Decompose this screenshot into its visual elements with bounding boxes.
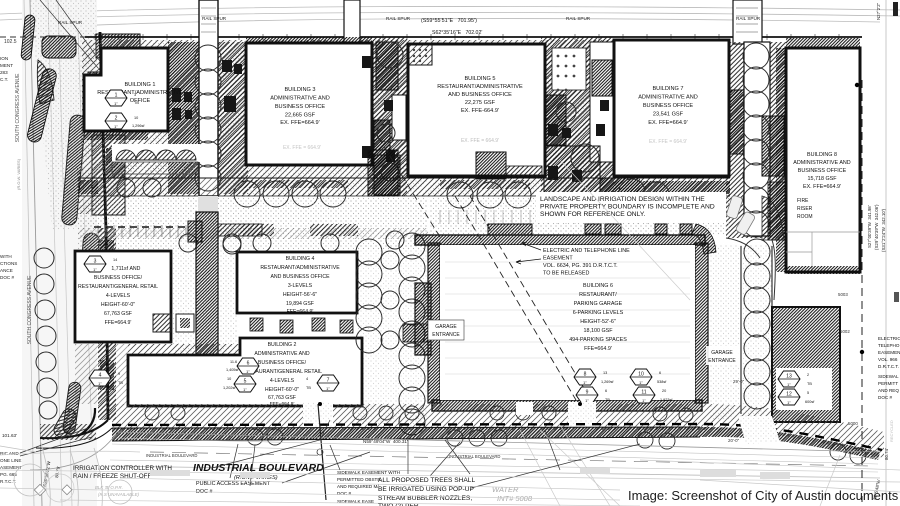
svg-text:RISER: RISER	[797, 206, 813, 212]
svg-text:1: 1	[115, 93, 118, 99]
svg-text:7: 7	[327, 378, 330, 384]
svg-text:BUILDING 7: BUILDING 7	[652, 86, 683, 92]
svg-text:WATER: WATER	[492, 485, 519, 494]
svg-text:(S29°40'39"W 342.06'): (S29°40'39"W 342.06')	[874, 204, 879, 250]
svg-text:FIRE: FIRE	[797, 198, 809, 204]
svg-text:ANCE: ANCE	[0, 268, 13, 273]
svg-text:TB: TB	[807, 382, 812, 386]
svg-text:LANDSCAPE AND IRRIGATION DESIG: LANDSCAPE AND IRRIGATION DESIGN WITHIN T…	[540, 196, 705, 203]
svg-text:BUSINESS OFFICE/: BUSINESS OFFICE/	[258, 360, 307, 366]
svg-text:GARAGE: GARAGE	[435, 324, 457, 330]
svg-text:8: 8	[584, 372, 587, 378]
svg-text:EX. FFE=664.9': EX. FFE=664.9'	[648, 120, 687, 126]
svg-text:ELECTRIC AND TELEPHONE LINE: ELECTRIC AND TELEPHONE LINE	[543, 248, 630, 254]
svg-text:5: 5	[244, 379, 247, 385]
svg-text:RAIL SPUR: RAIL SPUR	[58, 20, 83, 25]
svg-text:1": 1"	[243, 387, 247, 392]
svg-text:6: 6	[605, 389, 607, 393]
svg-text:PUBLIC ACCESS EASEMENT: PUBLIC ACCESS EASEMENT	[196, 481, 271, 487]
svg-text:ASEMENT: ASEMENT	[0, 465, 22, 470]
svg-text:13: 13	[786, 374, 792, 380]
svg-text:BUILDING 3: BUILDING 3	[284, 87, 315, 93]
svg-text:18,100 GSF: 18,100 GSF	[583, 328, 613, 334]
svg-text:TELEPHO: TELEPHO	[878, 343, 900, 348]
svg-text:RAIL SPUR: RAIL SPUR	[202, 16, 227, 21]
svg-text:RESTAURANT/ADMINISTRATIVE: RESTAURANT/ADMINISTRATIVE	[260, 265, 340, 271]
svg-text:HEIGHT-56'-6": HEIGHT-56'-6"	[283, 292, 317, 298]
svg-text:BUILDING 4: BUILDING 4	[286, 256, 315, 262]
svg-text:3-LEVELS: 3-LEVELS	[288, 283, 313, 289]
svg-text:SIDEWALK EASEMENT WITH: SIDEWALK EASEMENT WITH	[337, 470, 400, 475]
svg-text:AND REQ: AND REQ	[878, 388, 899, 393]
svg-text:CTIONS: CTIONS	[0, 261, 17, 266]
svg-text:ROOM: ROOM	[797, 214, 813, 220]
svg-text:11: 11	[641, 390, 646, 396]
svg-text:1,923sf: 1,923sf	[660, 398, 673, 402]
svg-text:BE IRRIGATED USING POP-UP: BE IRRIGATED USING POP-UP	[378, 486, 474, 493]
svg-text:1": 1"	[246, 369, 250, 374]
svg-text:3: 3	[94, 259, 97, 265]
svg-text:1,269sf: 1,269sf	[601, 380, 614, 384]
svg-text:4-LEVELS: 4-LEVELS	[106, 293, 131, 299]
svg-text:6: 6	[247, 361, 250, 367]
svg-text:C.T.: C.T.	[0, 77, 8, 82]
svg-text:FFE=664.9': FFE=664.9'	[105, 320, 132, 326]
svg-text:SIDEWAL: SIDEWAL	[878, 374, 899, 379]
svg-text:ADMINISTRATIVE AND: ADMINISTRATIVE AND	[270, 96, 330, 102]
svg-text:1,405sf: 1,405sf	[226, 368, 239, 372]
svg-text:1": 1"	[639, 380, 643, 385]
svg-text:5003: 5003	[838, 292, 848, 297]
svg-text:RIC AND: RIC AND	[0, 451, 19, 456]
svg-text:80.74': 80.74'	[884, 448, 889, 460]
svg-text:SOUTH CONGRESS AVENUE: SOUTH CONGRESS AVENUE	[27, 275, 33, 344]
svg-text:ENTRANCE: ENTRANCE	[432, 332, 460, 338]
svg-text:10: 10	[134, 116, 138, 120]
svg-text:10: 10	[638, 372, 644, 378]
svg-text:(R.S UNAVAILABLE): (R.S UNAVAILABLE)	[98, 492, 140, 497]
svg-text:D.R.T.C.T.: D.R.T.C.T.	[878, 364, 899, 369]
svg-text:ELECTRIC: ELECTRIC	[878, 336, 900, 341]
svg-text:GARAGE: GARAGE	[711, 350, 733, 356]
svg-text:EX. FFE = 664.9': EX. FFE = 664.9'	[283, 145, 321, 151]
svg-text:(R.O.W. VARIES): (R.O.W. VARIES)	[16, 158, 21, 190]
svg-text:BUSINESS OFFICE: BUSINESS OFFICE	[798, 168, 847, 174]
svg-text:1,296sf: 1,296sf	[132, 124, 145, 128]
svg-text:BUILDING 6: BUILDING 6	[583, 283, 613, 289]
svg-text:1": 1"	[93, 267, 97, 272]
svg-text:283: 283	[0, 70, 8, 75]
svg-text:BUSINESS OFFICE: BUSINESS OFFICE	[275, 104, 326, 110]
svg-text:ADMINISTRATIVE AND: ADMINISTRATIVE AND	[638, 95, 698, 101]
svg-text:20'-0": 20'-0"	[728, 438, 740, 443]
svg-text:1": 1"	[787, 400, 791, 405]
svg-text:HEIGHT-60'-0": HEIGHT-60'-0"	[265, 387, 299, 393]
svg-text:BUILDING 8: BUILDING 8	[807, 152, 837, 158]
svg-text:EX. FFE = 664.9': EX. FFE = 664.9'	[461, 138, 499, 144]
svg-text:15,718 GSF: 15,718 GSF	[807, 176, 837, 182]
svg-text:S27°00'39"W 341.98': S27°00'39"W 341.98'	[867, 205, 872, 248]
svg-text:BUILDING 1: BUILDING 1	[124, 82, 155, 88]
svg-text:RESTAURANT/GENERAL RETAIL: RESTAURANT/GENERAL RETAIL	[78, 284, 158, 290]
svg-text:20: 20	[662, 389, 666, 393]
svg-text:EASEMENT: EASEMENT	[543, 256, 573, 262]
svg-text:PERMITT: PERMITT	[878, 381, 898, 386]
svg-text:N27°2'2": N27°2'2"	[876, 2, 881, 20]
svg-text:EASEMEN: EASEMEN	[878, 350, 900, 355]
svg-text:SHOWN FOR REFERENCE ONLY.: SHOWN FOR REFERENCE ONLY.	[540, 211, 645, 218]
svg-text:1": 1"	[583, 380, 587, 385]
svg-text:FFE=664.9': FFE=664.9'	[287, 309, 314, 315]
svg-text:RAIL SPUR: RAIL SPUR	[566, 16, 591, 21]
svg-text:AND BUSINESS OFFICE: AND BUSINESS OFFICE	[270, 274, 330, 280]
svg-text:RAIL SPUR: RAIL SPUR	[736, 16, 761, 21]
svg-text:5000: 5000	[848, 421, 858, 426]
svg-text:TB: TB	[118, 381, 123, 385]
svg-text:EX. FFE=664.9': EX. FFE=664.9'	[803, 184, 841, 190]
svg-text:3: 3	[134, 93, 136, 97]
svg-text:SOUTH CONGRESS AVENUE: SOUTH CONGRESS AVENUE	[15, 73, 21, 142]
svg-text:11.6: 11.6	[230, 360, 237, 364]
svg-text:12: 12	[786, 392, 792, 398]
svg-text:PRIVATE PROPERTY BOUNDARY IS I: PRIVATE PROPERTY BOUNDARY IS INCOMPLETE …	[540, 204, 715, 211]
svg-text:1": 1"	[787, 382, 791, 387]
svg-text:538sf: 538sf	[657, 380, 667, 384]
svg-text:TB: TB	[605, 398, 610, 402]
svg-text:VOL. 6634, PG. 391 D.R.T.C.T.: VOL. 6634, PG. 391 D.R.T.C.T.	[543, 263, 618, 269]
svg-text:1": 1"	[326, 386, 330, 391]
svg-text:6-PARKING LEVELS: 6-PARKING LEVELS	[573, 310, 624, 316]
svg-text:67,763 GSF: 67,763 GSF	[268, 395, 296, 401]
svg-text:101.63': 101.63'	[2, 433, 17, 438]
svg-text:19,894 GSF: 19,894 GSF	[286, 301, 314, 307]
svg-text:AND BUSINESS OFFICE: AND BUSINESS OFFICE	[448, 92, 512, 98]
svg-text:1": 1"	[642, 398, 646, 403]
svg-text:MENT: MENT	[0, 63, 13, 68]
svg-text:4: 4	[306, 377, 308, 381]
svg-text:RESTAURANT/: RESTAURANT/	[579, 292, 617, 298]
svg-text:ION: ION	[0, 56, 8, 61]
svg-text:TO BE RELEASED: TO BE RELEASED	[543, 271, 589, 277]
svg-text:(S59°55'51"E 701.95'): (S59°55'51"E 701.95')	[421, 18, 477, 24]
svg-text:FFE=664.9': FFE=664.9'	[584, 346, 612, 352]
svg-text:RAIN / FREEZE SHUT-OFF: RAIN / FREEZE SHUT-OFF	[73, 473, 152, 480]
svg-text:4: 4	[99, 373, 102, 379]
svg-text:BUSINESS OFFICE: BUSINESS OFFICE	[643, 103, 694, 109]
svg-text:DOC #: DOC #	[337, 491, 351, 496]
svg-text:22,665 GSF: 22,665 GSF	[285, 113, 316, 119]
svg-text:9: 9	[586, 390, 589, 396]
svg-text:DOC #: DOC #	[878, 395, 892, 400]
svg-text:1": 1"	[114, 124, 118, 129]
svg-text:PERMITTED OBSTR: PERMITTED OBSTR	[337, 477, 381, 482]
svg-text:6: 6	[659, 371, 661, 375]
svg-text:10: 10	[227, 377, 231, 381]
svg-text:1": 1"	[98, 381, 102, 386]
svg-text:600sf: 600sf	[805, 400, 815, 404]
svg-text:N59°49'04"W 400.31': N59°49'04"W 400.31'	[363, 439, 408, 444]
svg-text:EX. FFE = 664.9': EX. FFE = 664.9'	[649, 139, 687, 145]
svg-text:BUSINESS OFFICE/: BUSINESS OFFICE/	[94, 275, 143, 281]
svg-text:BUILDING 2: BUILDING 2	[268, 342, 297, 348]
svg-text:ADMINISTRATIVE AND: ADMINISTRATIVE AND	[254, 351, 309, 357]
svg-text:494-PARKING SPACES: 494-PARKING SPACES	[569, 337, 627, 343]
svg-text:HEIGHT-60'-0": HEIGHT-60'-0"	[101, 302, 135, 308]
svg-text:OFFICE: OFFICE	[130, 98, 151, 104]
svg-text:5002: 5002	[840, 329, 850, 334]
svg-text:DOC #: DOC #	[0, 275, 14, 280]
svg-text:S62°35'16"E 702.02': S62°35'16"E 702.02'	[432, 30, 482, 36]
svg-text:ALL PROPOSED TREES SHALL: ALL PROPOSED TREES SHALL	[378, 477, 475, 484]
svg-text:29'-0": 29'-0"	[733, 379, 745, 384]
svg-text:23,541 GSF: 23,541 GSF	[653, 112, 684, 118]
svg-text:22,275 GSF: 22,275 GSF	[465, 100, 496, 106]
svg-text:102.5: 102.5	[4, 39, 17, 45]
svg-text:RESTAURANT/ADMINISTRATIVE: RESTAURANT/ADMINISTRATIVE	[437, 84, 523, 90]
svg-text:RECYCLED: RECYCLED	[889, 420, 894, 442]
svg-text:9: 9	[118, 372, 120, 376]
svg-text:WITH: WITH	[0, 254, 12, 259]
svg-text:ENTRANCE: ENTRANCE	[708, 358, 736, 364]
svg-text:INDUSTRIAL BOULEVARD: INDUSTRIAL BOULEVARD	[146, 453, 197, 458]
svg-text:14: 14	[113, 258, 117, 262]
svg-text:5: 5	[807, 391, 809, 395]
svg-text:2: 2	[807, 373, 809, 377]
svg-text:4-LEVELS: 4-LEVELS	[270, 378, 295, 384]
svg-text:TB: TB	[134, 101, 139, 105]
svg-text:Image: Screenshot of City of A: Image: Screenshot of City of Austin docu…	[628, 488, 899, 503]
svg-text:RAIL SPUR: RAIL SPUR	[386, 16, 411, 21]
svg-text:HEIGHT-52'-6": HEIGHT-52'-6"	[580, 319, 616, 325]
svg-text:2: 2	[115, 116, 118, 122]
svg-text:PARKING GARAGE: PARKING GARAGE	[574, 301, 623, 307]
svg-text:1,202sf: 1,202sf	[223, 386, 236, 390]
svg-text:13: 13	[603, 371, 607, 375]
svg-text:ONE LINE: ONE LINE	[0, 458, 21, 463]
svg-text:(S31°2'24"W 342.10'): (S31°2'24"W 342.10')	[881, 208, 886, 252]
svg-text:EX. FFE-664.9': EX. FFE-664.9'	[461, 108, 499, 114]
svg-text:EX. FFE=664.9': EX. FFE=664.9'	[280, 120, 319, 126]
svg-text:BUILDING 5: BUILDING 5	[464, 76, 495, 82]
svg-text:TB: TB	[306, 386, 311, 390]
svg-text:AND REQUIRED M/: AND REQUIRED M/	[337, 484, 379, 489]
svg-text:VOL. 966: VOL. 966	[878, 357, 898, 362]
svg-text:ADMINISTRATIVE AND: ADMINISTRATIVE AND	[793, 160, 851, 166]
svg-text:1": 1"	[114, 101, 118, 106]
svg-text:67,763 GSF: 67,763 GSF	[104, 311, 132, 317]
